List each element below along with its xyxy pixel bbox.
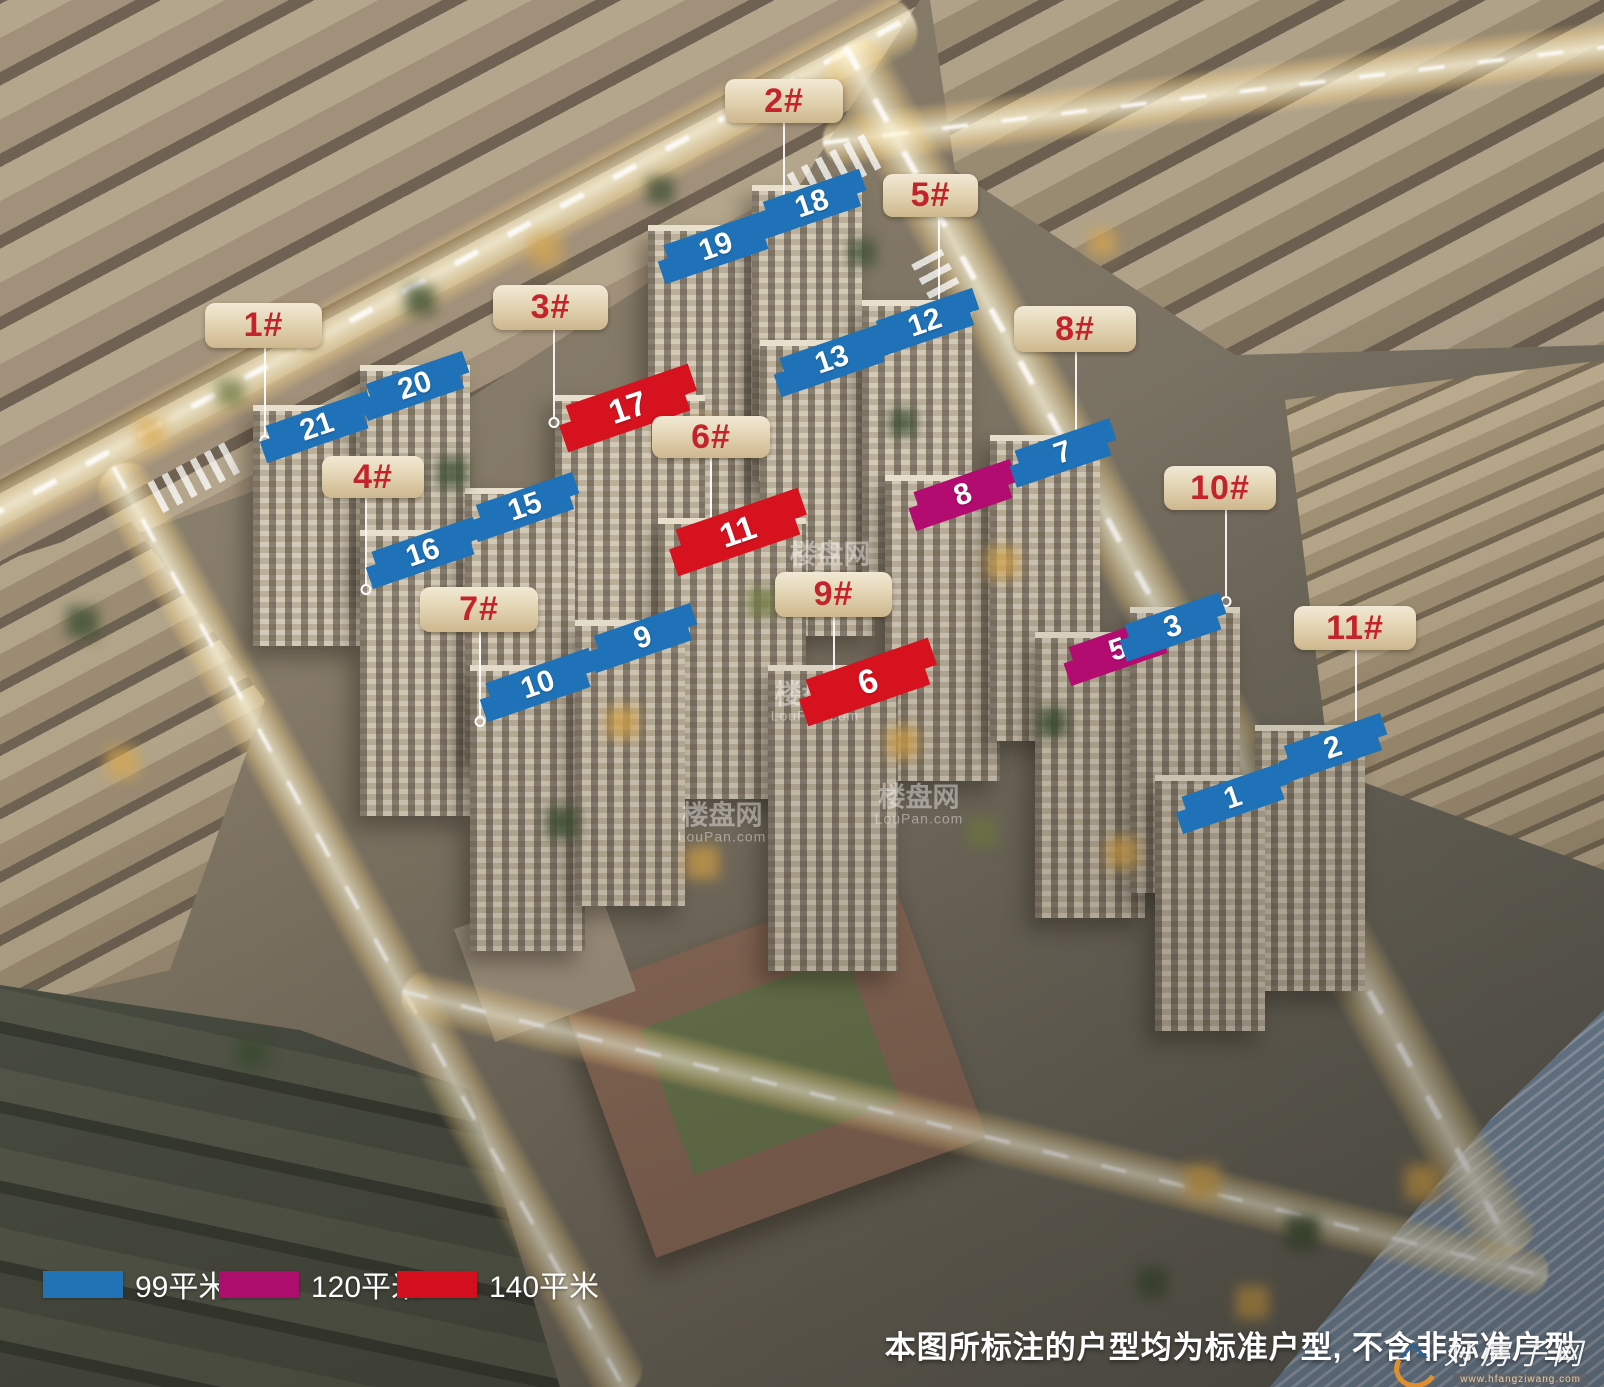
building-label-8: 8# [1014,306,1136,352]
house-logo-icon [1392,1340,1438,1382]
leader-line-7 [479,631,481,718]
unit-number: 17 [604,383,652,432]
legend-item-99: 99平米 [43,1262,228,1306]
building-label-text: 6# [691,418,731,457]
building-label-text: 3# [531,288,571,327]
building-label-text: 2# [764,82,804,121]
building-label-text: 7# [459,590,499,629]
legend-item-120: 120平米 [219,1262,421,1306]
unit-number: 11 [715,508,762,557]
watermark-domain: LouPan.com [875,812,964,827]
building-label-10: 10# [1164,466,1276,510]
leader-line-3 [553,327,555,419]
leader-line-5 [938,216,940,306]
logo-name: 好房子网 [1444,1340,1588,1370]
legend-item-140: 140平米 [397,1262,599,1306]
building-label-text: 11# [1326,609,1384,648]
unit-number: 1 [1220,779,1247,817]
site-plan-image: 楼盘网 LouPan.com 楼盘网 LouPan.com 楼盘网 LouPan… [0,0,1604,1387]
building-label-11: 11# [1294,606,1416,650]
unit-number: 7 [1050,434,1077,472]
building-label-7: 7# [420,587,538,632]
building-label-1: 1# [205,303,322,348]
building-label-4: 4# [322,456,424,498]
building-label-text: 4# [353,458,393,497]
building-label-2: 2# [725,79,843,123]
watermark-name: 楼盘网 [786,540,875,568]
building-label-5: 5# [883,174,978,217]
building-label-text: 5# [911,176,951,215]
building-label-9: 9# [775,572,892,617]
leader-line-10 [1225,509,1227,598]
unit-number: 9 [630,619,657,657]
legend-swatch-140 [397,1271,477,1298]
site-logo: 好房子网 www.hfangziwang.com [1392,1340,1588,1386]
unit-number: 6 [853,660,884,703]
building-label-text: 9# [814,575,854,614]
legend-swatch-120 [219,1271,299,1298]
watermark-name: 楼盘网 [875,783,964,811]
unit-number: 2 [1320,729,1347,767]
watermark-domain: LouPan.com [678,830,767,845]
watermark: 楼盘网 LouPan.com [678,801,767,844]
leader-line-4 [365,497,367,586]
building-label-3: 3# [493,285,608,330]
legend-label-140: 140平米 [489,1262,599,1306]
leader-line-8 [1075,351,1077,439]
leader-line-1 [264,347,266,437]
logo-url: www.hfangziwang.com [1453,1373,1588,1386]
legend-swatch-99 [43,1271,123,1298]
unit-number: 3 [1160,608,1187,646]
building-label-6: 6# [652,416,770,458]
building-label-text: 8# [1055,310,1095,349]
watermark: 楼盘网 LouPan.com [875,783,964,826]
watermark-name: 楼盘网 [678,801,767,829]
building-label-text: 1# [244,306,284,345]
building-label-text: 10# [1190,469,1250,508]
legend-label-99: 99平米 [135,1262,228,1306]
unit-number: 8 [950,476,977,514]
